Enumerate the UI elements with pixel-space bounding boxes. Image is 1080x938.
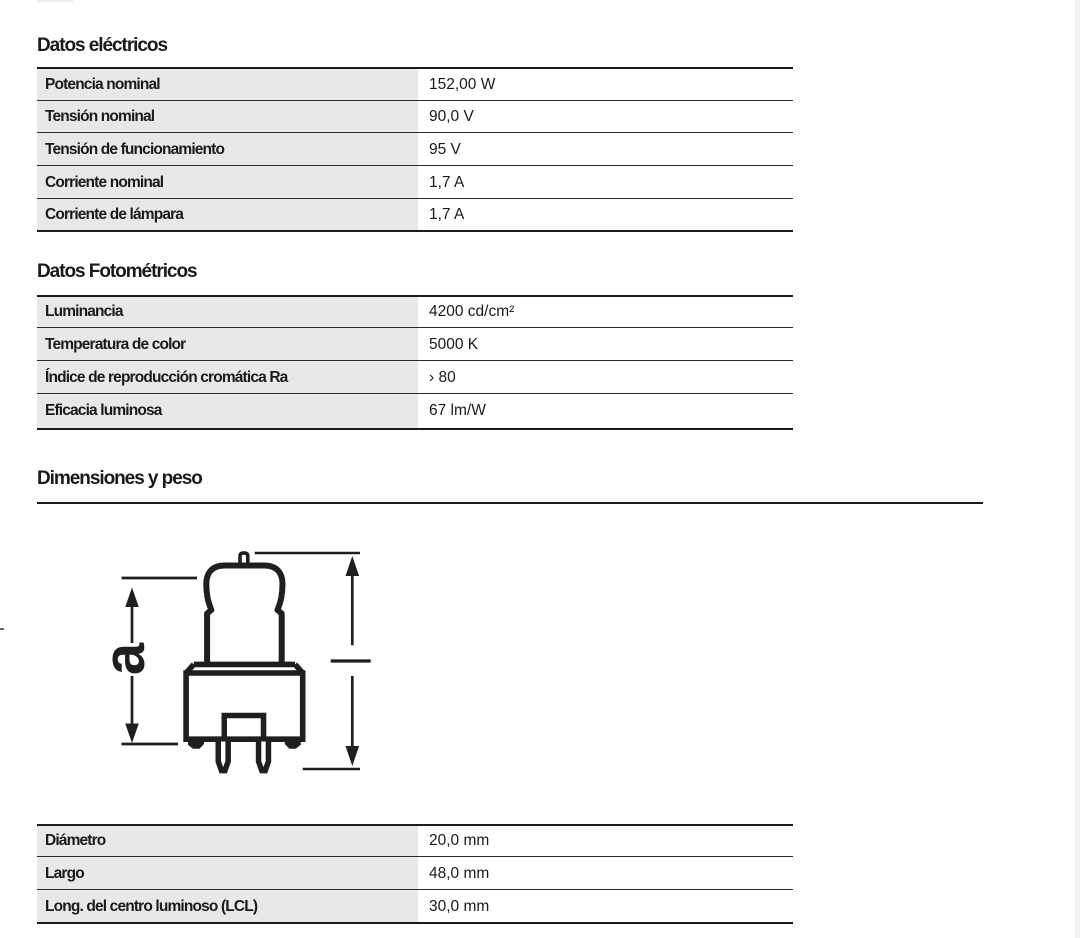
svg-text:a: a: [92, 642, 157, 675]
